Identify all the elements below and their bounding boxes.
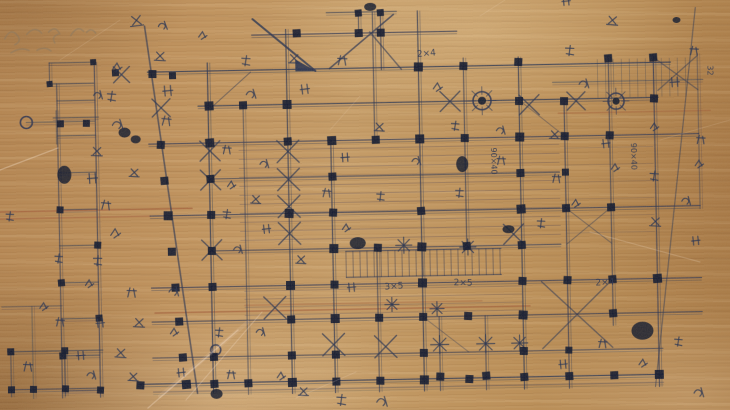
framing-plan-svg: 3×52×52×42×490×4090×4032: [0, 0, 730, 410]
wood-board-photo: 3×52×52×42×490×4090×4032: [0, 0, 730, 410]
wood-grain-noise: [0, 0, 730, 410]
